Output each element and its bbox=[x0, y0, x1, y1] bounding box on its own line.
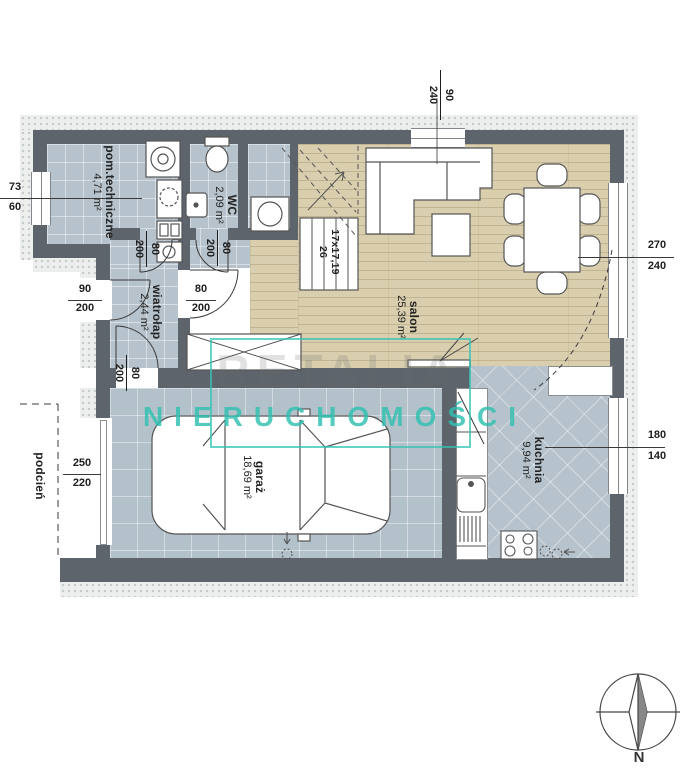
room-label-podcien: podcień bbox=[33, 441, 47, 511]
garage-gate-panel bbox=[100, 420, 107, 545]
wall-corridor-2 bbox=[172, 228, 196, 240]
dim-height: 200 bbox=[132, 240, 145, 258]
stairs-tread-depth: 26 bbox=[317, 246, 329, 258]
insulation-step bbox=[33, 258, 80, 272]
dim-leader-salon-door bbox=[578, 257, 674, 258]
dim-garage-interior-door: 80 200 bbox=[107, 355, 141, 391]
insulation-entry-lower bbox=[80, 322, 96, 368]
dim-width: 270 bbox=[648, 239, 666, 252]
room-area: 9,94 m² bbox=[520, 441, 532, 478]
wall-pom-wc bbox=[178, 132, 190, 228]
wall-hall-salon-top bbox=[178, 240, 190, 270]
dim-width: 80 bbox=[128, 367, 141, 379]
wall-right-1 bbox=[610, 130, 624, 183]
dim-height: 200 bbox=[192, 302, 210, 315]
stairs-label: 17x17,19 26 bbox=[315, 217, 341, 287]
dim-height: 220 bbox=[73, 477, 91, 490]
dim-entry-door-b: 200 bbox=[68, 302, 102, 315]
window-kitchen bbox=[608, 398, 628, 494]
room-name: salon bbox=[407, 301, 421, 333]
insulation-top bbox=[20, 115, 638, 130]
dim-divider bbox=[126, 355, 127, 391]
room-area: 4,71 m² bbox=[91, 173, 103, 210]
compass-circle bbox=[600, 674, 676, 750]
dim-height: 140 bbox=[648, 450, 666, 463]
dim-width: 80 bbox=[195, 283, 207, 296]
dim-left-window-b: 60 bbox=[2, 201, 28, 214]
stairs-spec: 17x17,19 bbox=[329, 229, 341, 274]
dim-width: 90 bbox=[442, 89, 455, 101]
compass-rose bbox=[596, 674, 680, 750]
kitchen-counter-top bbox=[548, 366, 613, 396]
wall-hall-salon-bottom bbox=[178, 318, 190, 368]
room-area: 25,39 m² bbox=[395, 295, 407, 338]
dim-leader-kitchen-window bbox=[545, 447, 665, 448]
compass-north-label: N bbox=[626, 749, 652, 766]
dim-leader-entry-door bbox=[68, 300, 102, 301]
dim-kitchen-window-b: 140 bbox=[640, 450, 674, 463]
dim-garage-door-a: 250 bbox=[63, 457, 101, 470]
wall-bottom bbox=[60, 558, 624, 582]
floor-stair-niche bbox=[248, 144, 290, 240]
room-name: pom.techniczne bbox=[103, 145, 117, 238]
wall-wc-niche bbox=[238, 132, 248, 228]
dim-width: 90 bbox=[79, 283, 91, 296]
room-name: WC bbox=[225, 195, 239, 215]
wall-left-1 bbox=[33, 130, 47, 172]
dim-width: 80 bbox=[148, 243, 161, 255]
room-area: 2,09 m² bbox=[213, 186, 225, 223]
room-label-pom-techniczne: pom.techniczne 4,71 m² bbox=[87, 137, 117, 247]
insulation-garage-left bbox=[80, 388, 96, 418]
wall-garage-left-bottom bbox=[96, 545, 110, 558]
insulation-bottom bbox=[60, 582, 638, 597]
room-label-wiatrolap: wiatrołap 2,44 m² bbox=[136, 272, 164, 352]
window-salon-slider bbox=[608, 183, 628, 338]
dim-height: 200 bbox=[112, 364, 125, 382]
dim-pom-door: 80 200 bbox=[129, 231, 161, 267]
dim-salon-interior-door-b: 200 bbox=[186, 302, 216, 315]
room-name: garaż bbox=[253, 461, 267, 493]
watermark-caption: NIERUCHOMOŚCI bbox=[105, 401, 565, 433]
dim-height: 240 bbox=[426, 86, 439, 104]
dim-width: 80 bbox=[219, 242, 232, 254]
dim-garage-door-b: 220 bbox=[63, 477, 101, 490]
dim-kitchen-window-a: 180 bbox=[640, 429, 674, 442]
dim-divider bbox=[217, 230, 218, 266]
room-name: kuchnia bbox=[532, 437, 546, 484]
wall-niche-stairs bbox=[290, 132, 298, 228]
room-name: podcień bbox=[33, 452, 47, 499]
dim-divider bbox=[440, 70, 441, 120]
dim-entry-door-a: 90 bbox=[68, 283, 102, 296]
dim-divider bbox=[146, 231, 147, 267]
compass-needle-shaded bbox=[638, 674, 647, 750]
floor-plan: pom.techniczne 4,71 m² WC 2,09 m² wiatro… bbox=[0, 0, 680, 768]
wall-top-right bbox=[463, 130, 624, 144]
dim-salon-interior-door-a: 80 bbox=[186, 283, 216, 296]
dim-leader-salon-interior-door bbox=[186, 300, 216, 301]
dim-width: 73 bbox=[9, 181, 21, 194]
wall-entry-stub-top bbox=[96, 258, 110, 280]
dim-leader-garage-door bbox=[63, 474, 101, 475]
dim-height: 60 bbox=[9, 201, 21, 214]
room-area: 2,44 m² bbox=[138, 293, 150, 330]
dim-salon-door-b: 240 bbox=[640, 260, 674, 273]
dim-left-window-a: 73 bbox=[2, 181, 28, 194]
dim-height: 200 bbox=[76, 302, 94, 315]
dim-salon-door-a: 270 bbox=[640, 239, 674, 252]
dim-width: 180 bbox=[648, 429, 666, 442]
dim-height: 240 bbox=[648, 260, 666, 273]
dim-top-window: 90 240 bbox=[419, 70, 455, 120]
compass-needle bbox=[629, 674, 647, 750]
dim-leader-left-window bbox=[0, 198, 142, 199]
room-name: wiatrołap bbox=[150, 285, 164, 339]
window-top bbox=[411, 128, 465, 148]
dim-height: 200 bbox=[203, 239, 216, 257]
dim-wc-door: 80 200 bbox=[200, 230, 232, 266]
room-area: 18,69 m² bbox=[241, 455, 253, 498]
dim-width: 250 bbox=[73, 457, 91, 470]
floor-salon bbox=[298, 144, 611, 368]
